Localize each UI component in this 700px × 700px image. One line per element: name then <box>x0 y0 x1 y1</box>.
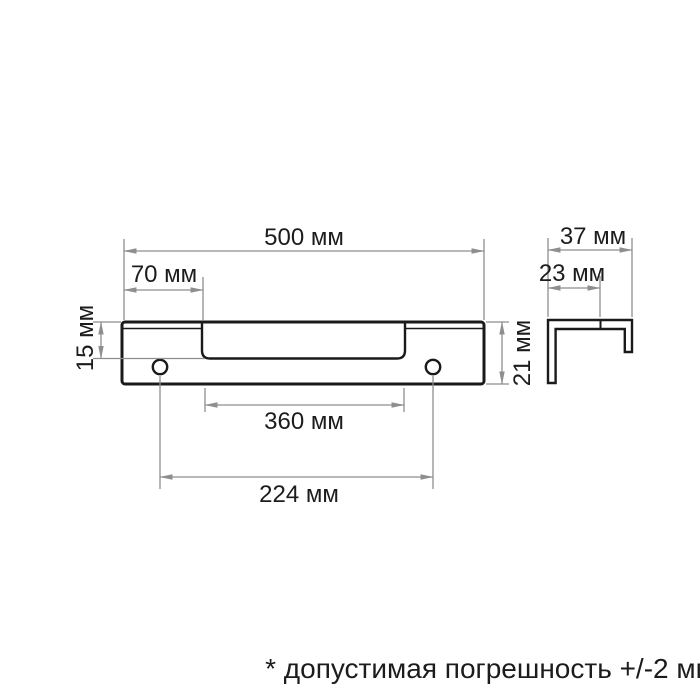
dimension-total-height-label: 21 мм <box>509 320 536 386</box>
dimension-recess-depth-label: 15 мм <box>72 305 99 371</box>
dimension-side-depth-label: 37 мм <box>560 223 626 250</box>
front-view <box>122 322 484 384</box>
dimension-recess-width-label: 360 мм <box>264 408 344 435</box>
technical-drawing: 500 мм 70 мм 15 мм 21 мм 360 мм <box>0 0 700 700</box>
dimension-side-inner-offset-label: 23 мм <box>539 260 605 287</box>
side-view-profile <box>548 320 632 383</box>
dimension-side-inner-offset: 23 мм <box>539 260 605 317</box>
side-view <box>548 319 632 383</box>
front-view-hole-right <box>426 360 440 374</box>
dimension-left-offset: 70 мм <box>124 261 203 320</box>
tolerance-note: * допустимая погрешность +/-2 мм <box>265 653 700 684</box>
dimension-total-width-label: 500 мм <box>264 224 344 251</box>
drawing-svg: 500 мм 70 мм 15 мм 21 мм 360 мм <box>0 0 700 700</box>
dimension-left-offset-label: 70 мм <box>131 261 197 288</box>
dimension-total-height: 21 мм <box>486 320 536 386</box>
dimension-hole-spacing: 224 мм <box>160 376 433 508</box>
dimension-hole-spacing-label: 224 мм <box>259 481 339 508</box>
dimension-recess-width: 360 мм <box>205 388 404 435</box>
front-view-hole-left <box>153 360 167 374</box>
